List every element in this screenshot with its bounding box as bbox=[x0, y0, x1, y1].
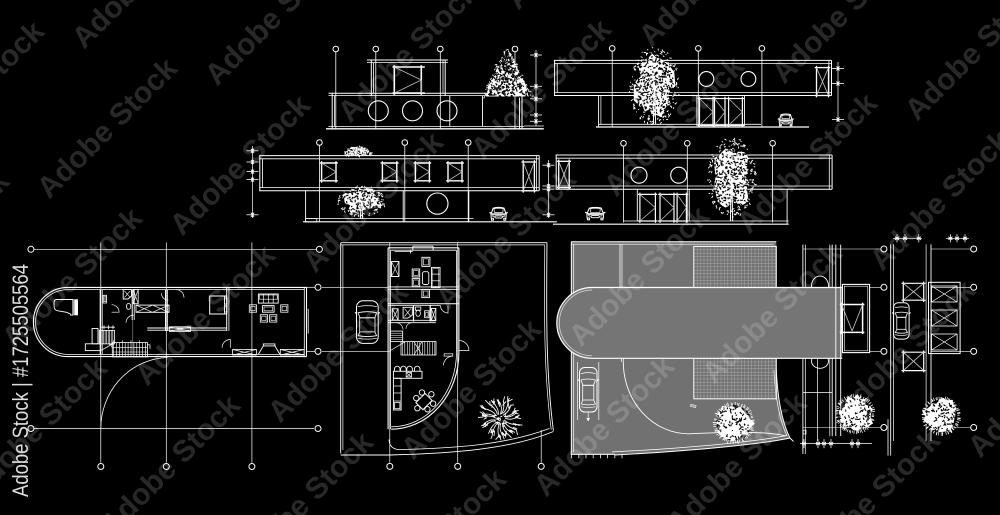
svg-text:Adobe Stock | #1725505564: Adobe Stock | #1725505564 bbox=[8, 264, 33, 497]
